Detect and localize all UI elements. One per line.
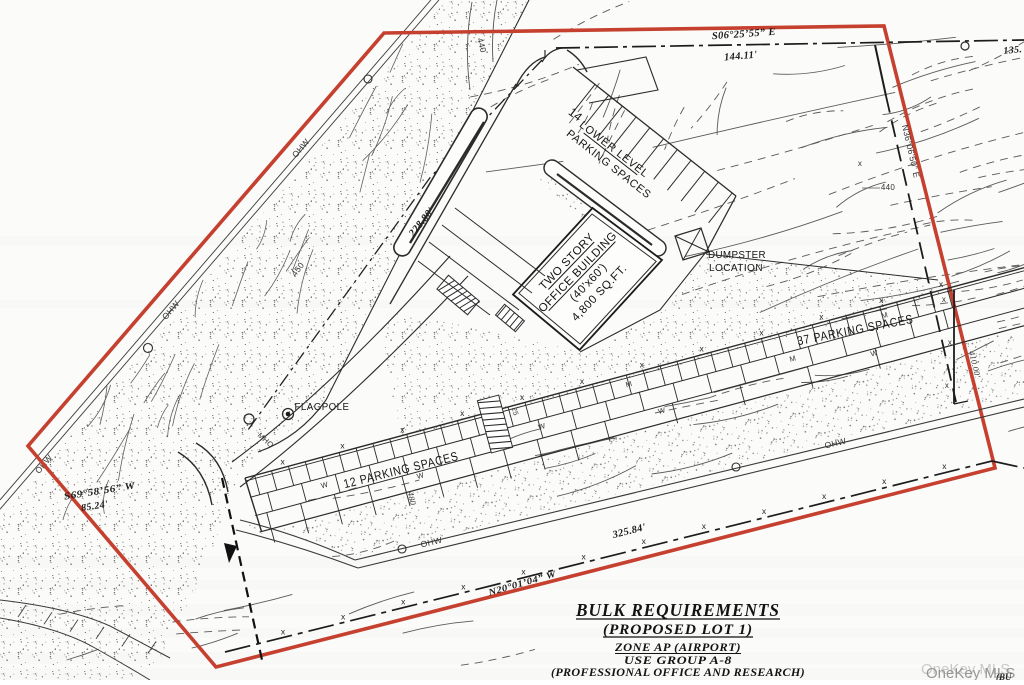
- svg-text:x: x: [281, 457, 286, 467]
- svg-text:x: x: [640, 360, 645, 370]
- svg-text:x: x: [580, 376, 585, 386]
- svg-text:(PROPOSED LOT 1): (PROPOSED LOT 1): [603, 622, 753, 638]
- svg-text:x: x: [879, 295, 884, 305]
- svg-text:USE GROUP A-8: USE GROUP A-8: [624, 655, 732, 667]
- svg-text:440: 440: [881, 183, 895, 192]
- svg-text:(BU: (BU: [996, 672, 1012, 680]
- svg-text:x: x: [460, 408, 465, 418]
- svg-text:x: x: [642, 536, 647, 546]
- svg-text:x: x: [882, 476, 887, 486]
- svg-text:135.: 135.: [1003, 44, 1023, 57]
- svg-text:x: x: [942, 461, 947, 471]
- svg-text:x: x: [822, 491, 827, 501]
- svg-text:x: x: [819, 311, 824, 321]
- svg-text:x: x: [521, 566, 526, 576]
- svg-text:x: x: [401, 596, 406, 606]
- svg-text:x: x: [341, 611, 346, 621]
- svg-text:BULK REQUIREMENTS: BULK REQUIREMENTS: [575, 600, 780, 620]
- svg-text:x: x: [520, 392, 525, 402]
- svg-text:x: x: [400, 424, 405, 434]
- svg-text:x: x: [340, 441, 345, 451]
- svg-text:x: x: [702, 521, 707, 531]
- svg-text:x: x: [759, 327, 764, 337]
- svg-text:ZONE AP (AIRPORT): ZONE AP (AIRPORT): [614, 640, 741, 654]
- svg-text:x: x: [858, 159, 862, 168]
- svg-text:x: x: [762, 506, 767, 516]
- svg-text:DUMPSTER: DUMPSTER: [708, 249, 766, 261]
- svg-text:(PROFESSIONAL OFFICE AND RESEA: (PROFESSIONAL OFFICE AND RESEARCH): [551, 667, 805, 679]
- svg-text:FLAGPOLE: FLAGPOLE: [295, 401, 350, 413]
- svg-text:x: x: [700, 344, 705, 354]
- svg-text:LOCATION: LOCATION: [709, 262, 763, 274]
- svg-text:x: x: [945, 381, 949, 390]
- svg-text:x: x: [582, 551, 587, 561]
- svg-text:x: x: [939, 279, 944, 289]
- svg-text:x: x: [942, 295, 946, 304]
- svg-text:x: x: [281, 627, 286, 637]
- svg-text:x: x: [461, 581, 466, 591]
